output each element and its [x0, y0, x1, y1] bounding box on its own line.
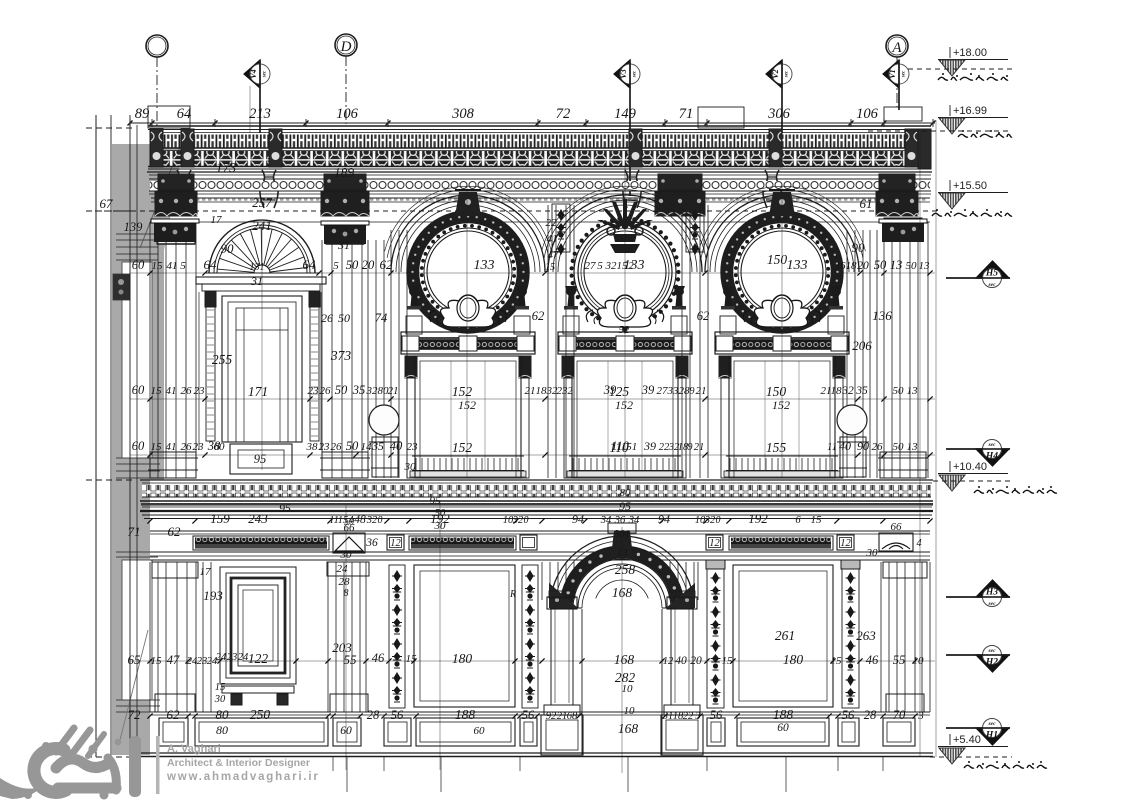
svg-text:15: 15 — [152, 260, 164, 272]
svg-text:H2: H2 — [985, 658, 998, 668]
svg-text:+15.50: +15.50 — [953, 180, 987, 192]
svg-text:50: 50 — [346, 439, 359, 453]
svg-text:0: 0 — [378, 515, 383, 526]
svg-text:17: 17 — [211, 214, 223, 226]
svg-text:80: 80 — [216, 723, 228, 737]
svg-text:H1: H1 — [985, 731, 998, 741]
svg-text:92: 92 — [546, 711, 557, 722]
svg-text:152: 152 — [615, 398, 633, 412]
svg-text:V1: V1 — [888, 69, 897, 78]
svg-text:+10.40: +10.40 — [953, 461, 987, 473]
svg-text:+18.00: +18.00 — [953, 47, 987, 59]
svg-text:21: 21 — [694, 442, 705, 453]
svg-text:64: 64 — [177, 106, 192, 122]
svg-text:250: 250 — [250, 707, 271, 722]
svg-text:188: 188 — [773, 707, 794, 722]
svg-text:34: 34 — [628, 515, 640, 526]
svg-text:52: 52 — [619, 324, 631, 336]
svg-text:70: 70 — [893, 708, 906, 722]
svg-text:50: 50 — [874, 258, 887, 272]
svg-text:15: 15 — [617, 260, 629, 272]
svg-text:+5.40: +5.40 — [953, 734, 981, 746]
svg-text:sec: sec — [263, 70, 268, 78]
svg-text:171: 171 — [248, 384, 268, 399]
svg-text:36: 36 — [614, 515, 626, 526]
svg-text:32: 32 — [366, 515, 378, 526]
svg-text:213: 213 — [249, 106, 271, 122]
svg-text:56: 56 — [710, 708, 723, 722]
svg-text:95: 95 — [430, 495, 442, 507]
svg-text:33: 33 — [667, 385, 680, 397]
svg-text:47: 47 — [548, 249, 560, 261]
svg-text:55: 55 — [893, 653, 906, 667]
svg-text:62: 62 — [380, 257, 394, 272]
svg-text:106: 106 — [856, 106, 879, 122]
svg-text:18: 18 — [536, 385, 548, 397]
svg-text:9: 9 — [688, 442, 693, 453]
svg-text:41: 41 — [166, 385, 177, 397]
svg-text:12: 12 — [840, 538, 851, 549]
svg-text:28: 28 — [679, 385, 691, 397]
svg-text:32: 32 — [512, 515, 524, 526]
svg-text:30: 30 — [866, 547, 879, 559]
svg-text:60: 60 — [777, 722, 789, 734]
svg-text:56: 56 — [391, 708, 404, 722]
svg-text:50: 50 — [335, 383, 348, 397]
svg-text:94: 94 — [572, 512, 584, 526]
svg-text:64: 64 — [303, 257, 317, 272]
svg-text:H4: H4 — [985, 452, 998, 462]
svg-text:11: 11 — [827, 441, 837, 453]
svg-text:106: 106 — [336, 106, 359, 122]
svg-text:34: 34 — [600, 515, 612, 526]
svg-text:50: 50 — [346, 258, 359, 272]
svg-text:23: 23 — [407, 441, 419, 453]
svg-text:60: 60 — [132, 439, 145, 453]
svg-text:150: 150 — [766, 384, 787, 399]
svg-text:21: 21 — [388, 385, 399, 397]
svg-text:sec: sec — [987, 721, 996, 727]
svg-text:21: 21 — [557, 711, 568, 722]
svg-text:50: 50 — [338, 311, 350, 325]
svg-text:23: 23 — [193, 441, 205, 453]
svg-text:35: 35 — [371, 441, 384, 453]
svg-text:13: 13 — [907, 385, 919, 397]
svg-text:22: 22 — [546, 217, 558, 229]
svg-text:150: 150 — [767, 252, 788, 267]
svg-text:136: 136 — [872, 308, 892, 323]
svg-text:65: 65 — [128, 652, 142, 667]
svg-text:48: 48 — [354, 514, 366, 526]
svg-text:26: 26 — [872, 441, 884, 453]
svg-text:168: 168 — [618, 721, 639, 736]
svg-text:32: 32 — [366, 385, 379, 397]
svg-text:74: 74 — [375, 311, 388, 325]
svg-text:23: 23 — [319, 441, 331, 453]
svg-text:152: 152 — [772, 398, 790, 412]
svg-text:R: R — [509, 589, 516, 600]
svg-text:22: 22 — [683, 711, 694, 722]
svg-text:15: 15 — [151, 385, 163, 397]
svg-text:23: 23 — [308, 385, 320, 397]
svg-text:38: 38 — [306, 441, 319, 453]
svg-text:152: 152 — [452, 384, 473, 399]
svg-text:2: 2 — [628, 260, 634, 272]
svg-text:159: 159 — [210, 511, 230, 526]
svg-text:31: 31 — [250, 274, 263, 288]
svg-text:50: 50 — [893, 385, 905, 397]
svg-text:14: 14 — [361, 441, 373, 453]
svg-text:151: 151 — [621, 441, 638, 453]
svg-text:255: 255 — [212, 352, 233, 367]
svg-text:41: 41 — [166, 441, 177, 453]
svg-text:26: 26 — [320, 385, 332, 397]
svg-text:3: 3 — [917, 710, 924, 722]
svg-text:80: 80 — [620, 487, 632, 499]
svg-text:0: 0 — [716, 515, 721, 526]
svg-text:50: 50 — [893, 441, 905, 453]
svg-text:155: 155 — [766, 440, 787, 455]
svg-text:40: 40 — [675, 655, 687, 667]
svg-text:32: 32 — [841, 385, 854, 397]
svg-text:23: 23 — [227, 652, 238, 663]
svg-text:20: 20 — [857, 260, 869, 272]
svg-text:V3: V3 — [619, 69, 628, 78]
svg-text:23: 23 — [557, 385, 569, 397]
svg-text:A: A — [891, 40, 902, 56]
svg-text:12: 12 — [709, 538, 720, 549]
svg-text:H3: H3 — [985, 588, 998, 598]
svg-text:9: 9 — [690, 386, 695, 397]
svg-text:H5: H5 — [985, 269, 998, 279]
svg-text:27: 27 — [585, 260, 597, 272]
svg-text:39: 39 — [641, 383, 655, 397]
svg-text:26: 26 — [181, 441, 193, 453]
svg-text:2: 2 — [568, 386, 573, 397]
svg-text:41: 41 — [547, 233, 558, 245]
svg-text:41: 41 — [167, 260, 178, 272]
svg-text:39: 39 — [603, 383, 617, 397]
svg-text:306: 306 — [767, 106, 791, 122]
svg-text:36: 36 — [834, 260, 847, 272]
svg-text:60: 60 — [132, 383, 145, 397]
svg-text:15: 15 — [215, 682, 226, 693]
svg-text:95: 95 — [279, 501, 291, 515]
svg-text:90: 90 — [857, 439, 869, 453]
svg-text:12: 12 — [390, 538, 401, 549]
svg-text:133: 133 — [787, 258, 808, 273]
svg-text:301: 301 — [613, 529, 630, 540]
svg-text:27: 27 — [657, 385, 669, 397]
svg-text:56: 56 — [522, 708, 535, 722]
svg-text:0: 0 — [524, 515, 529, 526]
svg-text:21: 21 — [525, 385, 536, 397]
svg-text:13: 13 — [890, 258, 903, 272]
svg-text:55: 55 — [344, 652, 358, 667]
svg-text:sec: sec — [785, 70, 790, 78]
svg-text:18: 18 — [831, 385, 843, 397]
svg-text:261: 261 — [775, 628, 795, 643]
svg-text:sec: sec — [987, 601, 996, 607]
svg-text:35: 35 — [855, 385, 868, 397]
svg-text:71: 71 — [128, 524, 141, 539]
svg-text:31: 31 — [337, 238, 350, 252]
svg-text:36: 36 — [365, 537, 378, 549]
svg-text:5: 5 — [597, 260, 603, 272]
svg-text:188: 188 — [455, 707, 476, 722]
svg-text:sec: sec — [987, 282, 996, 288]
svg-text:4: 4 — [916, 538, 922, 549]
svg-text:15: 15 — [151, 655, 163, 667]
svg-text:30: 30 — [214, 694, 226, 705]
svg-text:139: 139 — [124, 220, 144, 234]
svg-text:13: 13 — [907, 441, 919, 453]
svg-text:15: 15 — [151, 441, 163, 453]
svg-text:24: 24 — [207, 656, 218, 667]
svg-text:24: 24 — [238, 652, 249, 663]
svg-text:149: 149 — [614, 106, 637, 122]
svg-text:90: 90 — [852, 240, 866, 255]
svg-text:15: 15 — [722, 655, 734, 667]
svg-text:18: 18 — [846, 260, 858, 272]
svg-text:152: 152 — [452, 440, 473, 455]
svg-text:24: 24 — [216, 652, 227, 663]
svg-text:20: 20 — [362, 258, 375, 272]
svg-text:26: 26 — [181, 385, 193, 397]
svg-text:www.ahmadvaghari.ir: www.ahmadvaghari.ir — [166, 771, 320, 783]
svg-text:5: 5 — [180, 260, 186, 272]
svg-text:5: 5 — [333, 260, 339, 272]
svg-text:68: 68 — [567, 711, 578, 722]
svg-text:10: 10 — [622, 683, 634, 695]
svg-text:66: 66 — [891, 521, 903, 533]
svg-text:31: 31 — [662, 711, 674, 722]
svg-text:60: 60 — [474, 725, 486, 737]
svg-text:206: 206 — [852, 338, 872, 353]
svg-text:257: 257 — [252, 195, 272, 210]
svg-text:47: 47 — [167, 653, 180, 667]
svg-text:35: 35 — [352, 383, 366, 397]
svg-text:173: 173 — [216, 160, 237, 175]
svg-text:20: 20 — [690, 655, 702, 667]
svg-text:V4: V4 — [249, 69, 258, 78]
svg-text:26: 26 — [331, 441, 343, 453]
svg-text:15: 15 — [811, 514, 823, 526]
svg-text:40: 40 — [390, 439, 403, 453]
svg-text:40: 40 — [839, 439, 851, 453]
svg-text:62: 62 — [697, 309, 710, 323]
svg-text:243: 243 — [248, 511, 268, 526]
svg-text:189: 189 — [334, 165, 355, 180]
svg-text:6: 6 — [795, 515, 801, 526]
svg-text:56: 56 — [842, 708, 855, 722]
svg-text:133: 133 — [474, 258, 495, 273]
svg-text:46: 46 — [372, 651, 385, 665]
svg-text:23: 23 — [194, 385, 206, 397]
svg-text:373: 373 — [330, 348, 352, 363]
svg-text:67: 67 — [100, 196, 114, 211]
svg-text:39: 39 — [643, 439, 656, 453]
svg-text:193: 193 — [203, 588, 223, 603]
svg-text:308: 308 — [451, 106, 475, 122]
svg-text:23: 23 — [197, 656, 208, 667]
svg-text:62: 62 — [532, 309, 545, 323]
svg-text:17: 17 — [200, 566, 212, 578]
svg-text:sec: sec — [902, 70, 907, 78]
svg-text:192: 192 — [748, 511, 768, 526]
svg-text:72: 72 — [128, 707, 142, 722]
svg-text:180: 180 — [452, 651, 473, 666]
svg-text:80: 80 — [216, 707, 230, 722]
svg-text:62: 62 — [167, 707, 181, 722]
svg-text:50: 50 — [435, 508, 446, 519]
svg-text:64: 64 — [204, 257, 218, 272]
svg-text:26: 26 — [321, 311, 333, 325]
svg-text:28: 28 — [367, 708, 380, 722]
svg-text:A. Vaghari: A. Vaghari — [167, 743, 221, 755]
svg-text:60: 60 — [214, 441, 226, 453]
svg-text:32: 32 — [605, 260, 618, 272]
svg-text:+16.99: +16.99 — [953, 105, 987, 117]
svg-text:180: 180 — [783, 652, 804, 667]
svg-text:sec: sec — [987, 442, 996, 448]
svg-text:122: 122 — [248, 651, 269, 666]
svg-text:46: 46 — [866, 653, 879, 667]
svg-text:28: 28 — [864, 708, 877, 722]
svg-text:72: 72 — [556, 106, 571, 122]
svg-text:95: 95 — [254, 452, 267, 466]
svg-text:sec: sec — [633, 70, 638, 78]
svg-text:12: 12 — [663, 656, 674, 667]
svg-text:Architect & Interior Designer: Architect & Interior Designer — [167, 757, 310, 769]
svg-text:168: 168 — [614, 652, 635, 667]
svg-text:sec: sec — [987, 648, 996, 654]
svg-text:50: 50 — [906, 260, 918, 272]
svg-text:V2: V2 — [771, 69, 780, 78]
svg-text:21: 21 — [696, 385, 707, 397]
svg-text:95: 95 — [619, 499, 631, 513]
svg-text:60: 60 — [132, 258, 145, 272]
svg-text:90: 90 — [221, 241, 235, 256]
svg-text:50: 50 — [344, 517, 354, 528]
svg-text:71: 71 — [679, 106, 694, 122]
svg-text:D: D — [340, 39, 352, 55]
svg-text:61: 61 — [860, 196, 873, 211]
svg-text:258: 258 — [615, 562, 636, 577]
